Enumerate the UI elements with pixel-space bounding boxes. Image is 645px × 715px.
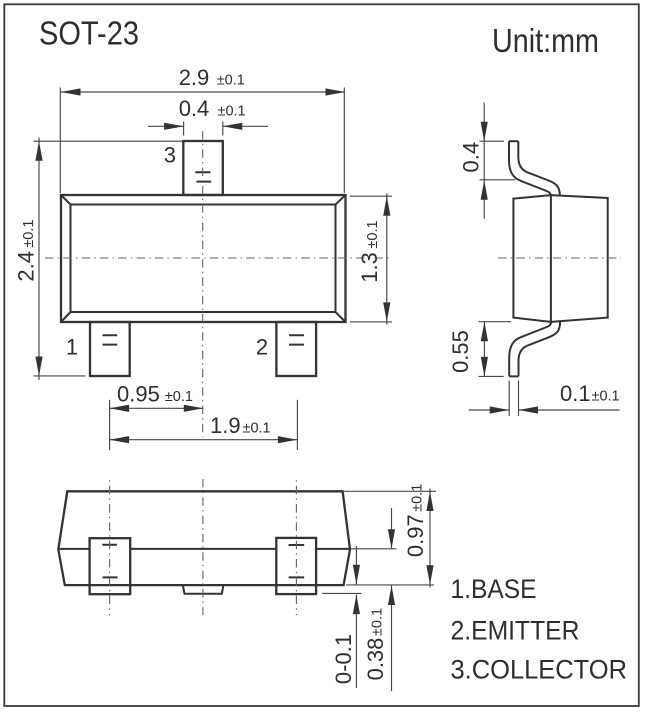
svg-text:±0.1: ±0.1 bbox=[592, 389, 620, 405]
svg-text:3: 3 bbox=[164, 143, 176, 168]
svg-text:SOT-23: SOT-23 bbox=[39, 15, 139, 52]
svg-text:±0.1: ±0.1 bbox=[217, 73, 245, 89]
svg-text:±0.1: ±0.1 bbox=[365, 220, 381, 248]
svg-text:0.4: 0.4 bbox=[459, 142, 484, 173]
svg-text:1: 1 bbox=[66, 335, 78, 360]
svg-text:1.3: 1.3 bbox=[357, 252, 382, 283]
svg-text:0.55: 0.55 bbox=[448, 330, 473, 373]
svg-text:3.COLLECTOR: 3.COLLECTOR bbox=[451, 654, 628, 684]
svg-text:±0.1: ±0.1 bbox=[218, 103, 246, 119]
svg-text:±0.1: ±0.1 bbox=[165, 389, 193, 405]
svg-text:0-0.1: 0-0.1 bbox=[331, 634, 356, 684]
svg-text:±0.1: ±0.1 bbox=[370, 608, 386, 636]
svg-text:2: 2 bbox=[256, 335, 268, 360]
svg-text:2.4: 2.4 bbox=[14, 251, 39, 282]
svg-text:0.38: 0.38 bbox=[363, 638, 388, 681]
svg-text:0.1: 0.1 bbox=[560, 381, 591, 406]
svg-text:1.BASE: 1.BASE bbox=[451, 574, 537, 604]
svg-text:±0.1: ±0.1 bbox=[243, 420, 271, 436]
svg-text:2.EMITTER: 2.EMITTER bbox=[451, 616, 580, 646]
svg-text:±0.1: ±0.1 bbox=[410, 484, 426, 512]
svg-text:0.97: 0.97 bbox=[403, 514, 428, 557]
svg-text:0.4: 0.4 bbox=[179, 96, 210, 121]
svg-text:1.9: 1.9 bbox=[210, 413, 241, 438]
svg-text:±0.1: ±0.1 bbox=[21, 220, 37, 248]
svg-text:Unit:mm: Unit:mm bbox=[492, 22, 599, 59]
svg-text:0.95: 0.95 bbox=[117, 382, 160, 407]
svg-text:2.9: 2.9 bbox=[179, 65, 210, 90]
